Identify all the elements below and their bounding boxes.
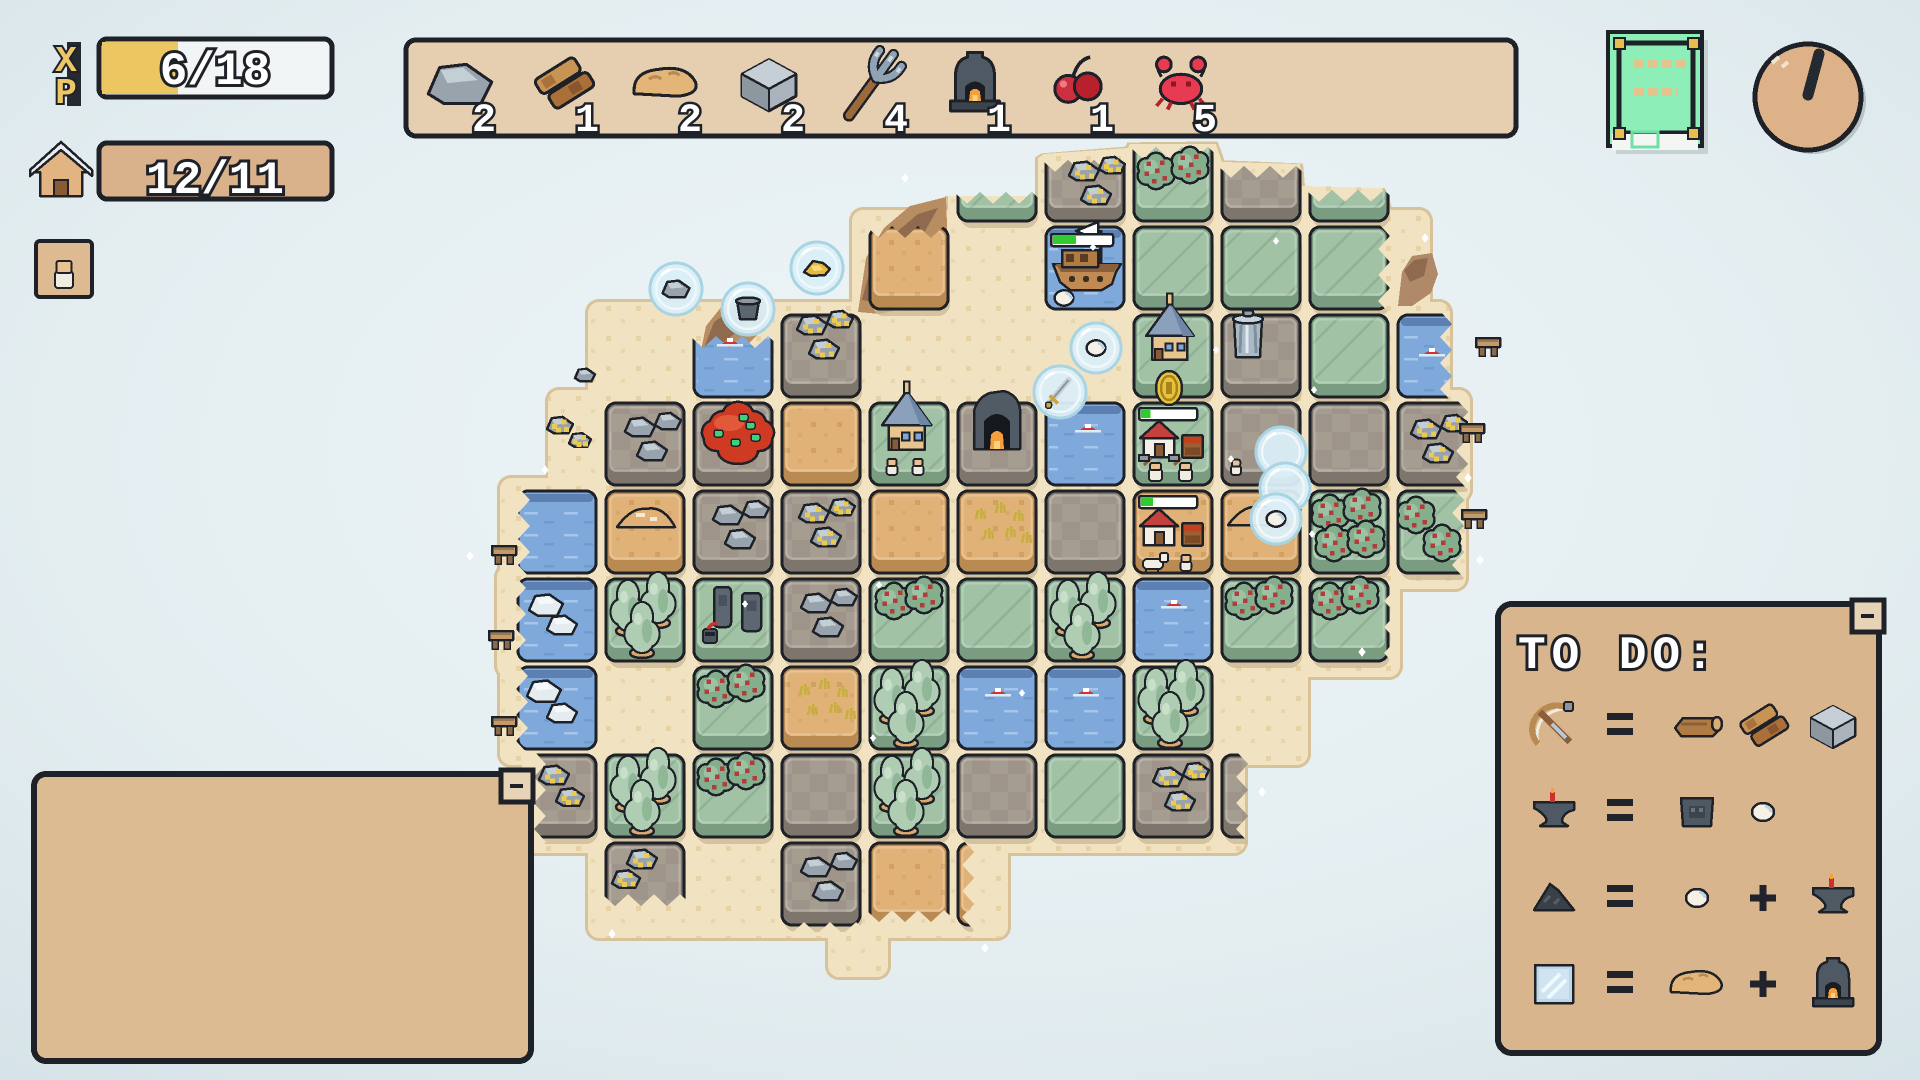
svg-text:TO DO:: TO DO: (1518, 630, 1720, 682)
svg-text:2: 2 (678, 99, 702, 144)
svg-text:1: 1 (1090, 99, 1114, 144)
svg-text:5: 5 (1193, 99, 1217, 144)
svg-text:12/11: 12/11 (146, 155, 284, 207)
svg-text:2: 2 (781, 99, 805, 144)
svg-text:P: P (55, 73, 77, 114)
svg-text:2: 2 (472, 99, 496, 144)
svg-text:6/18: 6/18 (160, 46, 270, 98)
svg-text:1: 1 (987, 99, 1011, 144)
svg-text:4: 4 (884, 99, 908, 144)
svg-text:1: 1 (575, 99, 599, 144)
